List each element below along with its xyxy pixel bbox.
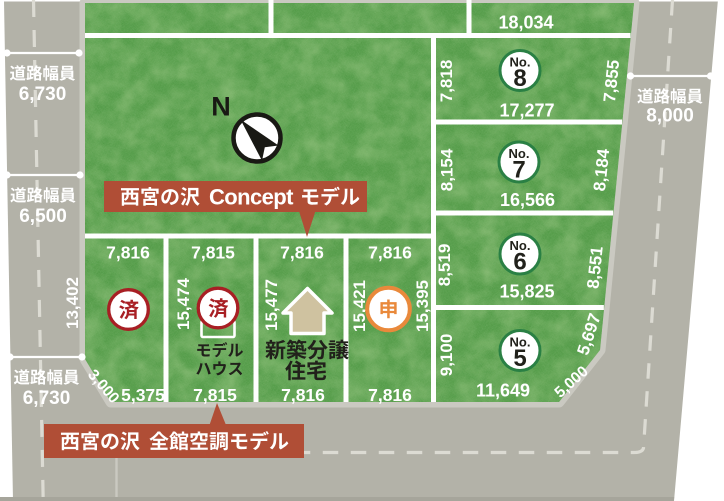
- svg-text:6,730: 6,730: [23, 388, 71, 409]
- svg-text:8,000: 8,000: [646, 105, 694, 126]
- svg-text:15,825: 15,825: [499, 281, 554, 301]
- svg-text:7,818: 7,818: [437, 60, 456, 103]
- svg-text:8,519: 8,519: [435, 244, 454, 287]
- svg-text:7,816: 7,816: [280, 242, 324, 262]
- svg-text:18,034: 18,034: [498, 12, 553, 32]
- svg-text:7,815: 7,815: [193, 385, 237, 405]
- svg-text:13,402: 13,402: [63, 277, 82, 329]
- svg-text:8,154: 8,154: [438, 148, 457, 191]
- svg-text:7,816: 7,816: [368, 385, 412, 405]
- svg-text:7,816: 7,816: [368, 242, 412, 262]
- svg-text:15,477: 15,477: [262, 279, 281, 331]
- svg-text:7,816: 7,816: [281, 385, 325, 405]
- svg-text:7,815: 7,815: [191, 242, 235, 262]
- svg-text:15,474: 15,474: [174, 277, 193, 330]
- svg-text:8: 8: [513, 65, 526, 92]
- svg-text:6,500: 6,500: [19, 206, 67, 227]
- svg-text:5,375: 5,375: [121, 385, 165, 405]
- svg-text:9,100: 9,100: [437, 334, 456, 377]
- svg-text:Concept: Concept: [209, 184, 294, 209]
- svg-text:11,649: 11,649: [476, 380, 530, 400]
- svg-text:6: 6: [513, 249, 526, 276]
- svg-text:6,730: 6,730: [19, 84, 67, 105]
- svg-text:7,816: 7,816: [106, 242, 150, 262]
- svg-text:N: N: [211, 92, 231, 122]
- svg-text:16,566: 16,566: [500, 190, 555, 210]
- svg-text:15,395: 15,395: [413, 280, 432, 332]
- svg-text:17,277: 17,277: [499, 100, 554, 120]
- svg-text:7: 7: [512, 157, 525, 184]
- svg-text:5: 5: [513, 345, 526, 372]
